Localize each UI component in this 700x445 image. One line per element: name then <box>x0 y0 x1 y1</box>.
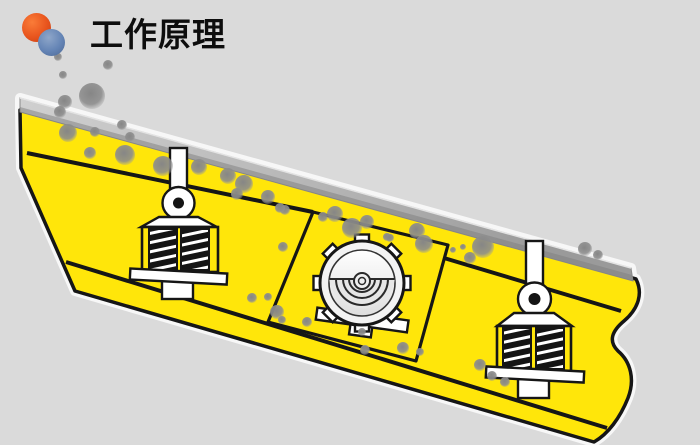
rock-particle <box>115 145 135 165</box>
right-support-post <box>526 241 543 284</box>
rock-particle <box>278 242 288 252</box>
exciter-shaft <box>354 273 370 289</box>
rock-particle <box>191 159 207 175</box>
rock-particle <box>90 127 100 137</box>
rock-particle <box>103 60 113 70</box>
vibration-exciter <box>314 235 411 338</box>
rock-particle <box>474 359 486 371</box>
rock-particle <box>415 235 433 253</box>
rock-particle <box>464 252 476 264</box>
rock-particle <box>84 147 96 159</box>
rock-particle <box>302 317 312 327</box>
left-support-post <box>170 148 187 190</box>
rock-particle <box>153 156 173 176</box>
rock-particle <box>220 168 236 184</box>
right-base-post <box>518 379 549 398</box>
rock-particle <box>59 71 67 79</box>
rock-particle <box>416 348 424 356</box>
rock-particle <box>261 190 275 204</box>
rock-particle <box>450 247 456 253</box>
rock-particle <box>593 250 603 260</box>
rock-particle <box>327 206 343 222</box>
left-hub-pin <box>173 198 184 209</box>
rock-particle <box>578 242 592 256</box>
brand-logo <box>18 10 80 68</box>
rock-particle <box>278 316 286 324</box>
rock-particle <box>342 218 362 238</box>
logo-blue-circle-icon <box>38 29 65 56</box>
rock-particle <box>397 342 409 354</box>
rock-particle <box>500 377 510 387</box>
rock-particle <box>275 203 285 213</box>
rock-particle <box>386 234 394 242</box>
rock-particle <box>360 345 370 355</box>
left-spring-coil-1 <box>149 229 177 270</box>
rock-particle <box>54 106 66 118</box>
left-spring-coil-2 <box>181 229 209 270</box>
rock-particle <box>360 215 374 229</box>
rock-particle <box>472 236 494 258</box>
rock-particle <box>264 293 272 301</box>
right-hub-pin <box>529 293 541 305</box>
rock-particle <box>460 244 466 250</box>
rock-particle <box>247 293 257 303</box>
right-spring-coil-1 <box>503 328 531 369</box>
page-title: 工作原理 <box>90 8 226 56</box>
right-spring-coil-2 <box>536 328 564 369</box>
working-principle-page: 工作原理 <box>0 0 700 445</box>
vibrating-screen-diagram <box>0 0 700 445</box>
rock-particle <box>358 328 366 336</box>
rock-particle <box>117 120 127 130</box>
rock-particle <box>125 132 135 142</box>
rock-particle <box>487 371 497 381</box>
rock-particle <box>59 124 77 142</box>
rock-particle <box>79 83 105 109</box>
page-header: 工作原理 <box>0 0 700 60</box>
rock-particle <box>318 212 328 222</box>
rock-particle <box>231 188 243 200</box>
